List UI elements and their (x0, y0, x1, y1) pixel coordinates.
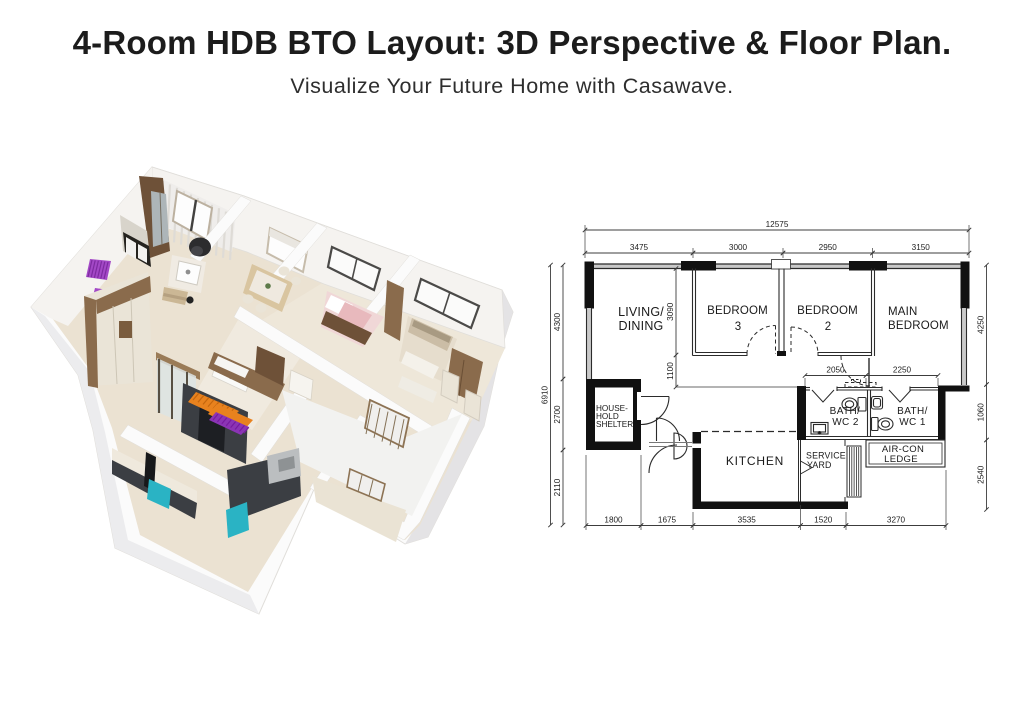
svg-text:2050: 2050 (826, 366, 845, 375)
svg-text:12575: 12575 (766, 220, 789, 229)
svg-text:BEDROOM: BEDROOM (888, 320, 949, 332)
svg-text:2: 2 (825, 321, 832, 333)
svg-text:LEDGE: LEDGE (884, 454, 918, 465)
svg-text:LIVING/: LIVING/ (618, 305, 664, 319)
svg-text:BEDROOM: BEDROOM (707, 305, 768, 317)
svg-text:DINING: DINING (619, 319, 664, 333)
svg-text:3150: 3150 (912, 243, 931, 252)
svg-text:2700: 2700 (553, 405, 562, 424)
svg-text:2110: 2110 (553, 478, 562, 496)
svg-text:1675: 1675 (658, 516, 677, 525)
svg-text:1060: 1060 (977, 403, 986, 422)
svg-text:BATH/: BATH/ (897, 406, 928, 417)
svg-text:3090: 3090 (666, 302, 675, 321)
svg-text:2250: 2250 (893, 366, 912, 375)
svg-text:MAIN: MAIN (888, 306, 918, 318)
svg-text:SHELTER: SHELTER (596, 420, 633, 429)
svg-text:WC 1: WC 1 (899, 417, 926, 428)
svg-text:3: 3 (735, 321, 742, 333)
svg-text:BATH/: BATH/ (830, 406, 861, 417)
svg-text:SERVICE: SERVICE (806, 451, 846, 461)
svg-text:6910: 6910 (541, 385, 550, 404)
svg-text:2540: 2540 (977, 465, 986, 484)
svg-text:1100: 1100 (666, 362, 675, 380)
svg-text:4250: 4250 (977, 315, 986, 334)
svg-text:YARD: YARD (807, 460, 832, 470)
svg-text:KITCHEN: KITCHEN (726, 454, 784, 468)
svg-text:1520: 1520 (814, 516, 833, 525)
svg-text:4300: 4300 (553, 312, 562, 331)
svg-text:2950: 2950 (819, 243, 838, 252)
svg-text:BEDROOM: BEDROOM (797, 305, 858, 317)
svg-text:WC 2: WC 2 (832, 417, 859, 428)
svg-text:3475: 3475 (630, 243, 649, 252)
svg-text:3000: 3000 (729, 243, 748, 252)
svg-text:1800: 1800 (604, 516, 623, 525)
svg-text:3535: 3535 (738, 516, 757, 525)
svg-text:3270: 3270 (887, 516, 906, 525)
